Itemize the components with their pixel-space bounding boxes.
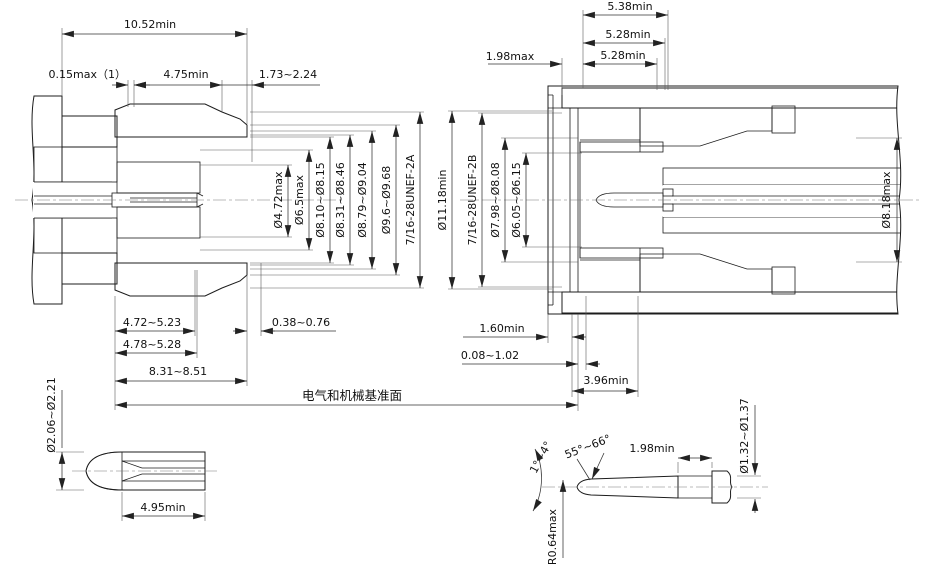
dim-pin-dia: Ø1.32~Ø1.37 [738,398,751,474]
dims-right-bottom: 1.60min 0.08~1.02 3.96min [461,322,638,391]
dim-pin-radius: R0.64max [546,508,559,565]
dim-dia-8-10: Ø8.10~Ø8.15 [314,162,327,238]
dim-socket-dia: Ø2.06~Ø2.21 [45,377,58,453]
dim-overall-length: 10.52min [124,18,176,31]
dim-dia-8-31: Ø8.31~Ø8.46 [334,162,347,238]
socket-contact-detail: Ø2.06~Ø2.21 4.95min [45,377,218,521]
dim-t3: 5.28min [600,49,645,62]
dim-b2: 4.78~5.28 [123,338,181,351]
dim-rb3: 3.96min [583,374,628,387]
dims-left-top: 10.52min 0.15max（1） 4.75min 1.73~2.24 [49,18,320,85]
reference-plane-label: 电气和机械基准面 [302,388,402,403]
dims-left-diameters: Ø4.72max Ø6.5max Ø8.10~Ø8.15 Ø8.31~Ø8.46… [272,112,420,288]
dim-recess: 1.73~2.24 [259,68,317,81]
dim-pin-tip-angle: 55°~66° [563,432,613,461]
drawing-canvas: 10.52min 0.15max（1） 4.75min 1.73~2.24 Ø4… [0,0,930,573]
male-connector-section [460,86,920,314]
dim-rb1: 1.60min [479,322,524,335]
dim-b3: 8.31~8.51 [149,365,207,378]
dim-t4: 1.98max [486,50,535,63]
dim-dia-9-6: Ø9.6~Ø9.68 [380,166,393,235]
dims-right-top: 5.38min 5.28min 5.28min 1.98max [486,0,668,64]
connector-interface-drawing: 10.52min 0.15max（1） 4.75min 1.73~2.24 Ø4… [0,0,930,573]
dim-t1: 5.38min [607,0,652,13]
dim-dia-7-98: Ø7.98~Ø8.08 [489,162,502,238]
dim-lip: 0.15max（1） [49,68,126,81]
dim-thread-2b: 7/16-28UNEF-2B [466,155,479,246]
dim-dia-6-5: Ø6.5max [293,174,306,225]
dim-rb2: 0.08~1.02 [461,349,519,362]
pin-contact-detail: 1.98min 55°~66° 1°~4° R0.64max Ø1.32~Ø1.… [527,398,768,565]
dim-nut-length: 4.75min [163,68,208,81]
dim-b4: 0.38~0.76 [272,316,330,329]
dim-dia-11-18: Ø11.18min [436,170,449,231]
dim-dia-6-05: Ø6.05~Ø6.15 [510,162,523,238]
dim-dia-4-72: Ø4.72max [272,171,285,229]
dim-b1: 4.72~5.23 [123,316,181,329]
dim-thread-2a: 7/16-28UNEF-2A [404,154,417,245]
dim-dia-8-79: Ø8.79~Ø9.04 [356,162,369,238]
dim-t2: 5.28min [605,28,650,41]
dim-pin-len: 1.98min [629,442,674,455]
dim-dia-8-18: Ø8.18max [880,171,893,229]
dim-socket-len: 4.95min [140,501,185,514]
